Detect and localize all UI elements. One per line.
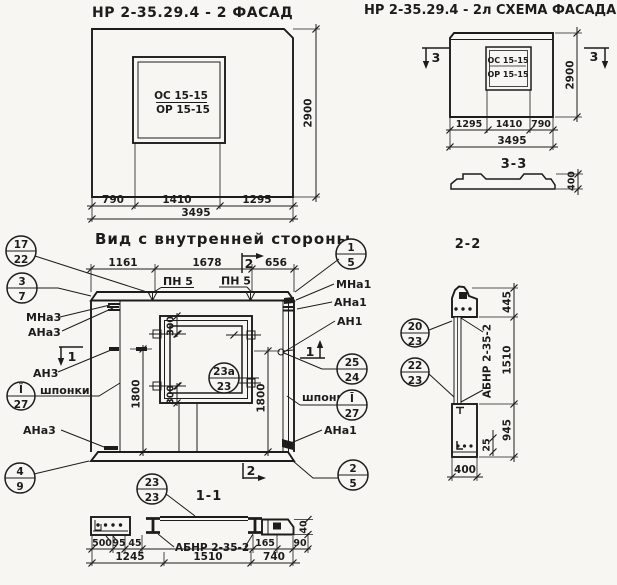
svg-text:1: 1: [306, 344, 315, 359]
section-flag-3-left: 3: [422, 48, 449, 69]
facade-dim-790: 790: [102, 194, 124, 206]
inner-view: Вид с внутренней стороны 300: [23, 230, 371, 504]
s22-dim-25: 25: [482, 438, 493, 451]
inner-dim-1161: 1161: [108, 257, 137, 269]
arrow-up-icon: [317, 340, 323, 348]
svg-text:5: 5: [349, 478, 356, 490]
s11-dim-740: 740: [263, 551, 285, 563]
facade-dim-2900: 2900: [303, 98, 315, 127]
arrow-right-icon: [256, 253, 264, 259]
s11-dim-165: 165: [255, 538, 275, 549]
facade-dim-3495: 3495: [181, 207, 210, 219]
svg-text:7: 7: [18, 291, 25, 303]
embed-plate-bottom-right: [282, 439, 293, 450]
section-2-2-title: 2-2: [455, 237, 482, 252]
scheme-dim-2900: 2900: [565, 60, 577, 89]
svg-text:27: 27: [345, 408, 360, 420]
svg-text:22: 22: [408, 360, 423, 372]
label-ana1: АНа1: [334, 296, 367, 309]
inner-dim-1678: 1678: [192, 257, 221, 269]
svg-text:27: 27: [14, 399, 29, 411]
svg-text:1: 1: [347, 242, 354, 254]
section-3-3-title: 3-3: [501, 157, 528, 172]
svg-text:24: 24: [345, 372, 360, 384]
inner-panel-bottom-band: [91, 452, 294, 461]
inner-dim-300-bottom: 300: [166, 385, 177, 405]
svg-text:23: 23: [217, 381, 232, 393]
section-1-1: АБНР 2-35-2 500 95 45 165 90 40 1245 151…: [86, 516, 313, 567]
svg-text:Ï: Ï: [19, 382, 23, 396]
scheme-view: НР 2-35.29.4 - 2л СХЕМА ФАСАДА ОС 15-15 …: [364, 3, 616, 195]
s11-ibeam-left: [146, 519, 160, 534]
svg-text:23а: 23а: [213, 366, 235, 378]
callout-22-23: 22 23: [401, 358, 454, 397]
callout-25-24: 25 24: [284, 353, 367, 384]
label-ana3: АНа3: [28, 326, 61, 339]
svg-text:17: 17: [14, 239, 29, 251]
inner-dim-300-top: 300: [166, 316, 177, 336]
s22-dim-945: 945: [502, 419, 514, 441]
s22-dim-445: 445: [502, 291, 514, 313]
scheme-dim-790: 790: [531, 119, 551, 130]
label-ana3-low: АНа3: [23, 424, 56, 437]
facade-window-mark-top: ОС 15-15: [154, 90, 208, 102]
svg-text:1: 1: [68, 349, 77, 364]
svg-text:3: 3: [590, 49, 599, 64]
label-pn5-right: ПН 5: [221, 275, 251, 288]
svg-text:3: 3: [432, 50, 441, 65]
scheme-dim-1410: 1410: [496, 119, 523, 130]
svg-text:Ī: Ī: [350, 392, 354, 405]
embed-plate-top-right: [284, 297, 294, 304]
s11-dim-45: 45: [128, 538, 141, 549]
inner-view-title: Вид с внутренней стороны: [95, 230, 351, 248]
callout-4-9: 4 9: [5, 461, 89, 493]
svg-text:4: 4: [16, 466, 23, 478]
facade-dim-1410: 1410: [162, 194, 191, 206]
facade-view: НР 2-35.29.4 - 2 ФАСАД ОС 15-15 ОР 15-15…: [87, 5, 320, 223]
s11-dim-500: 500: [92, 538, 112, 549]
label-mna3: МНа3: [26, 311, 61, 324]
label-an3: АН3: [33, 367, 58, 380]
scheme-title: НР 2-35.29.4 - 2л СХЕМА ФАСАДА: [364, 3, 616, 18]
section-flag-1-right: 1: [300, 340, 325, 359]
svg-text:2: 2: [247, 463, 256, 478]
facade-title: НР 2-35.29.4 - 2 ФАСАД: [92, 5, 293, 21]
inner-dim-1800-left: 1800: [131, 379, 143, 408]
inner-panel-top-band: [91, 292, 294, 301]
svg-text:9: 9: [16, 481, 23, 493]
scheme-dim-3495: 3495: [497, 135, 526, 147]
callout-2-5: 2 5: [293, 460, 368, 490]
blueprint-page: НР 2-35.29.4 - 2 ФАСАД ОС 15-15 ОР 15-15…: [0, 0, 617, 585]
scheme-dim-1295: 1295: [456, 119, 482, 130]
s11-dim-90: 90: [293, 538, 307, 549]
svg-text:23: 23: [145, 477, 160, 489]
label-ana1-low: АНа1: [324, 424, 357, 437]
s22-dim-400: 400: [454, 464, 476, 476]
section-3-3-profile: [451, 174, 555, 189]
s11-dim-1245: 1245: [115, 551, 144, 563]
section-flag-3-right: 3: [584, 48, 609, 69]
svg-text:22: 22: [14, 254, 29, 266]
label-pn5-left: ПН 5: [163, 275, 193, 288]
scheme-window-mark-top: ОС 15-15: [487, 56, 528, 65]
svg-text:3: 3: [18, 276, 25, 288]
callout-3-7: 3 7: [7, 273, 91, 303]
arrow-down-icon: [602, 61, 608, 69]
label-mna1: МНа1: [336, 278, 371, 291]
inner-dim-1800-right: 1800: [256, 383, 268, 412]
svg-text:23: 23: [408, 336, 423, 348]
inner-dim-656: 656: [265, 257, 287, 269]
callout-20-23: 20 23: [401, 319, 452, 348]
svg-text:25: 25: [345, 357, 360, 369]
svg-text:5: 5: [347, 257, 354, 269]
scheme-window-mark-bottom: ОР 15-15: [487, 70, 528, 79]
facade-window-mark-bottom: ОР 15-15: [156, 104, 210, 116]
svg-text:23: 23: [145, 492, 160, 504]
arrow-right-icon: [258, 475, 266, 481]
arrow-down-icon: [58, 358, 64, 366]
facade-dim-1295: 1295: [242, 194, 271, 206]
s22-dim-1510: 1510: [502, 345, 514, 374]
s22-sill-block: [452, 404, 477, 457]
svg-text:2: 2: [245, 256, 254, 271]
s22-beam-label: АБНР 2-35-2: [482, 324, 494, 398]
section-flag-2-bottom: 2: [243, 463, 266, 481]
s11-dim-40: 40: [299, 520, 310, 534]
arrow-down-icon: [423, 61, 429, 69]
scheme-window: [486, 47, 531, 90]
s11-dim-95: 95: [112, 538, 125, 549]
section-flag-2-top: 2: [242, 253, 264, 273]
svg-text:2: 2: [349, 463, 356, 475]
label-an1: АН1: [337, 315, 362, 328]
s11-ibeam-right: [248, 519, 262, 534]
svg-text:20: 20: [408, 321, 423, 333]
label-shponki-left: шпонки: [40, 384, 90, 397]
section-3-3-dim-400: 400: [567, 171, 578, 191]
section-2-2: 2-2 АБНР 2-35-2 445 1510 945 25 400: [447, 237, 518, 481]
embed-plate-bottom-left: [104, 446, 118, 450]
callout-23-23: 23 23: [137, 474, 195, 516]
section-1-1-title: 1-1: [196, 489, 223, 504]
s22-lintel: [452, 287, 477, 318]
s11-dim-1510: 1510: [193, 551, 222, 563]
svg-text:23: 23: [408, 375, 423, 387]
